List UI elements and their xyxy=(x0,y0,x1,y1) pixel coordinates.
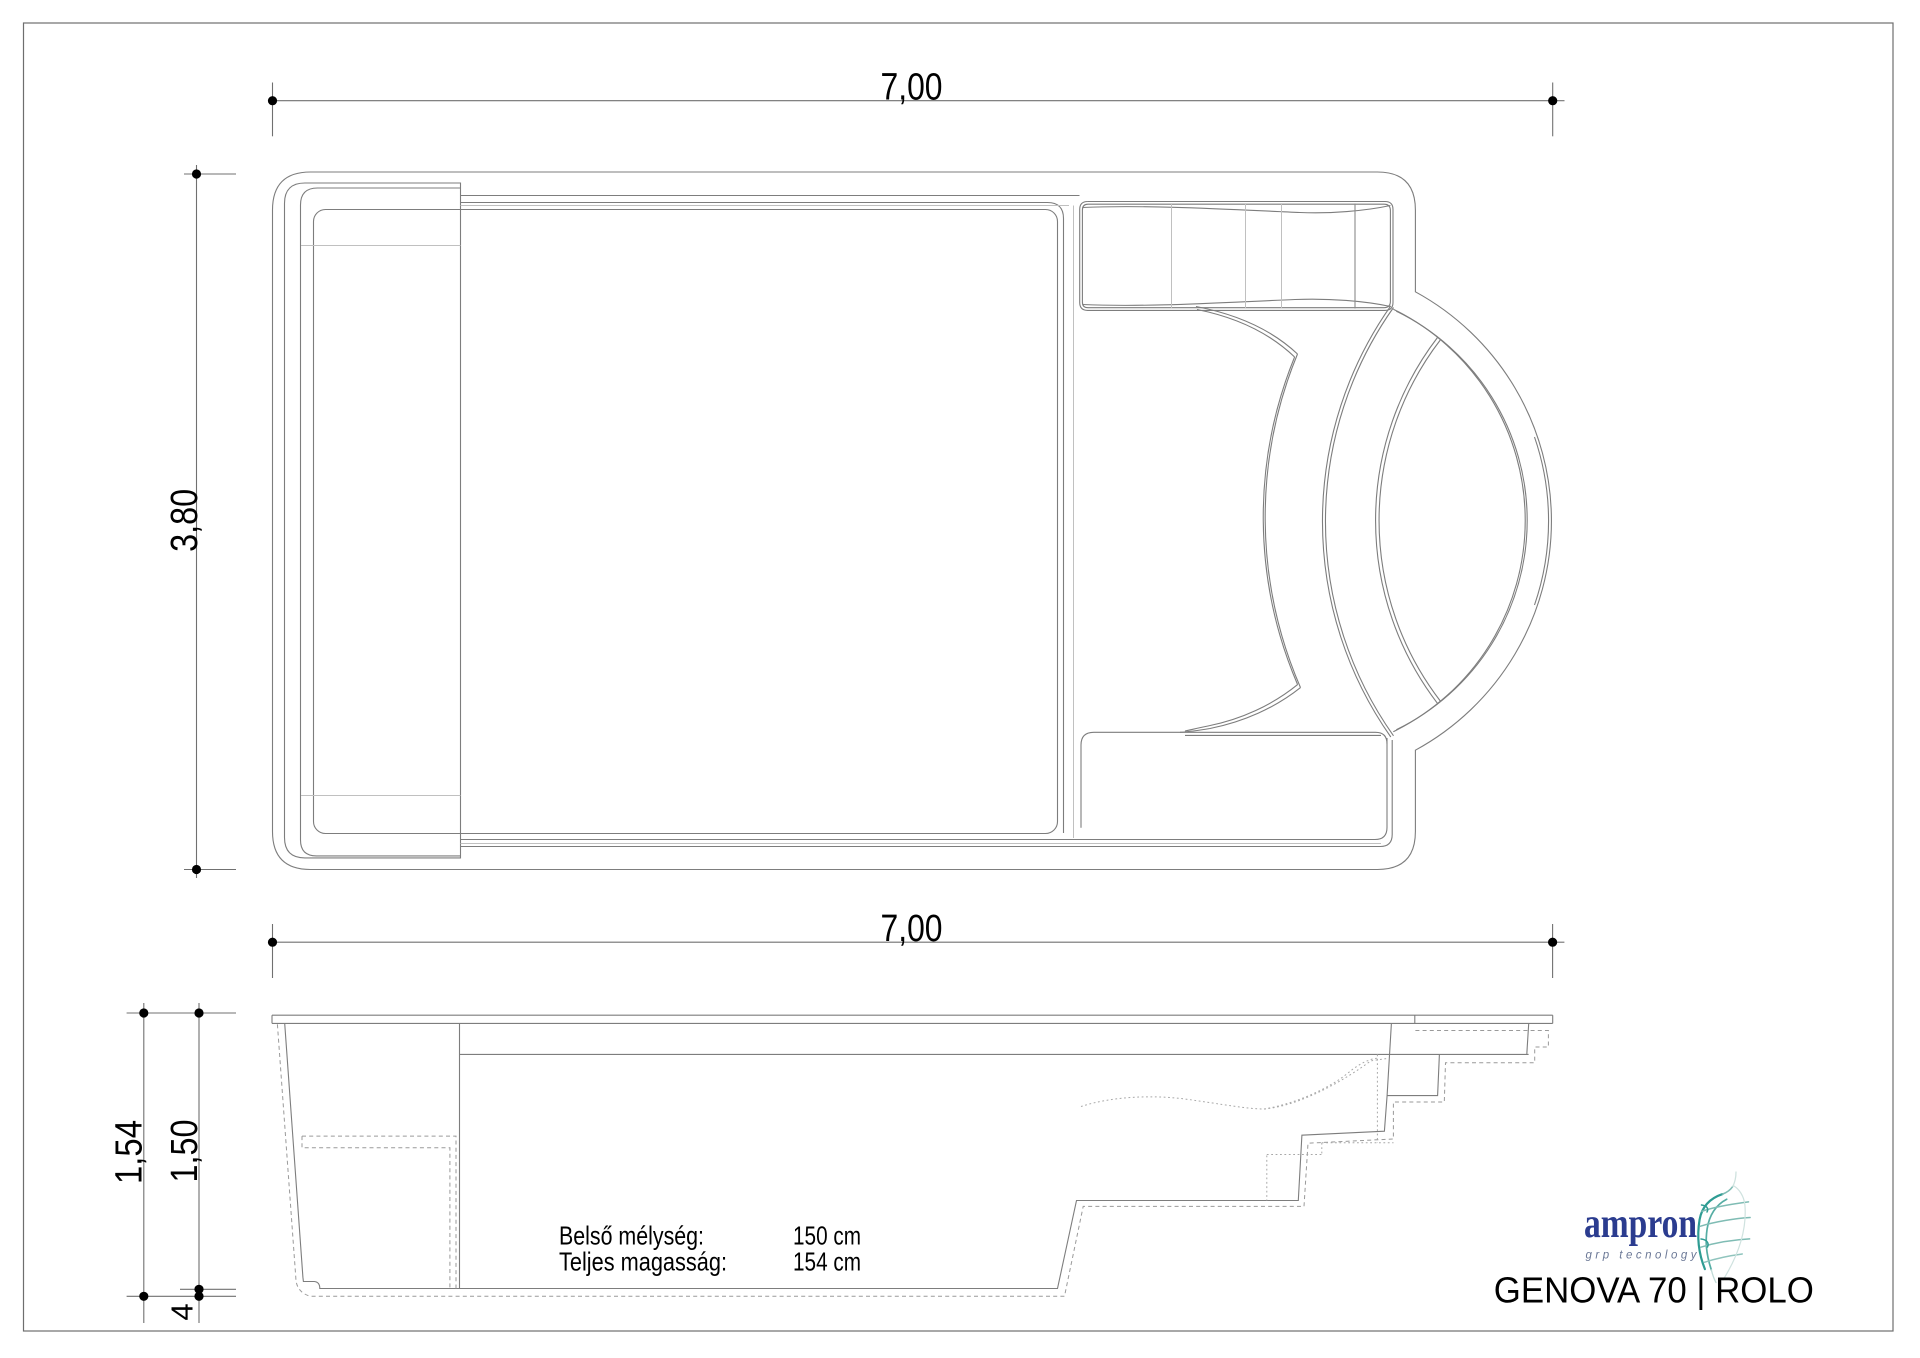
svg-text:154 cm: 154 cm xyxy=(793,1246,861,1276)
svg-text:Teljes magasság:: Teljes magasság: xyxy=(559,1246,727,1276)
svg-text:3,80: 3,80 xyxy=(164,489,206,552)
svg-text:7,00: 7,00 xyxy=(881,66,943,108)
svg-text:1,50: 1,50 xyxy=(164,1120,206,1183)
svg-text:4: 4 xyxy=(165,1303,200,1320)
svg-text:1,54: 1,54 xyxy=(109,1120,151,1184)
svg-text:GENOVA 70 | ROLO: GENOVA 70 | ROLO xyxy=(1494,1270,1814,1311)
svg-text:7,00: 7,00 xyxy=(881,908,943,950)
svg-text:grp tecnology: grp tecnology xyxy=(1586,1250,1698,1262)
svg-text:ampron: ampron xyxy=(1584,1201,1697,1247)
